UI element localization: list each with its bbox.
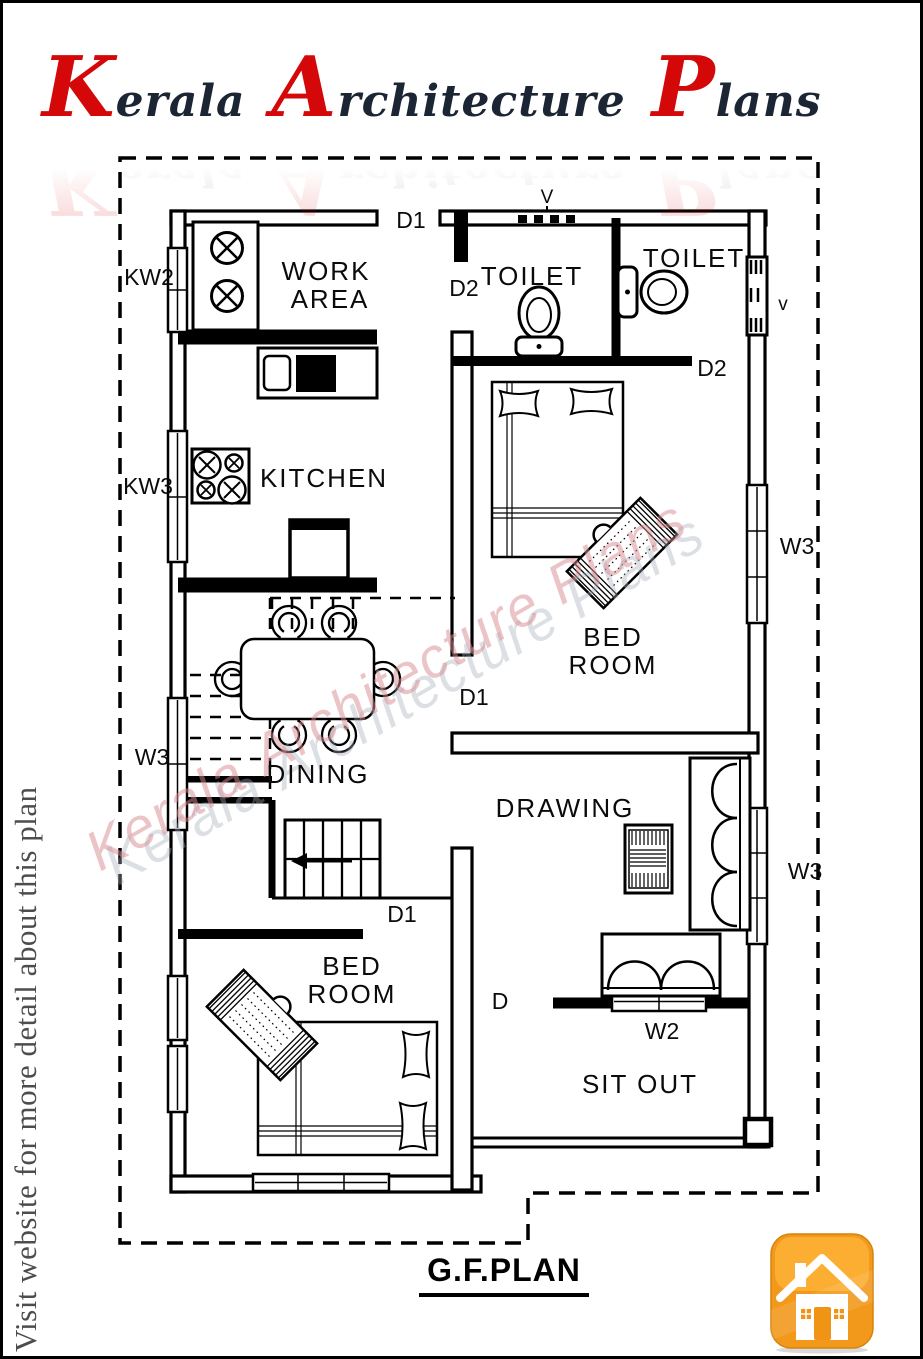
label-dining: DINING <box>267 759 370 789</box>
hob-icon <box>296 355 336 392</box>
stove-icon <box>192 449 249 504</box>
coffee-table-icon <box>625 825 672 893</box>
wall-sitout-edge <box>460 1138 769 1147</box>
pillow-icon <box>500 391 538 416</box>
pillow-icon <box>403 1032 429 1077</box>
label-drawing: DRAWING <box>496 793 635 823</box>
window-symbol-bedroom2-front <box>253 1174 389 1191</box>
plan-title: G.F.PLAN <box>419 1252 589 1297</box>
label-bedroom-2-b: ROOM <box>308 979 397 1009</box>
pillow-icon <box>400 1103 426 1149</box>
logo-word-2: Architecture <box>272 8 626 167</box>
wall-right <box>749 211 765 1147</box>
label-bedroom-1-b: ROOM <box>569 650 658 680</box>
label-window-w2: W2 <box>645 1018 680 1044</box>
site-logo: KeralaArchitecturePlans <box>42 8 848 167</box>
window-symbol-w3-upper <box>747 485 767 623</box>
label-bedroom-2-a: BED <box>322 951 381 981</box>
wc-icon <box>618 267 687 317</box>
label-door-d2-toilet1: D2 <box>449 275 478 301</box>
label-toilet-1: TOILET <box>481 261 584 291</box>
wall-bed1-drawing <box>452 733 758 753</box>
kitchen-counter <box>258 348 377 398</box>
label-vent-right: v <box>778 294 788 315</box>
sofa-three-seat-icon <box>690 758 750 930</box>
label-door-d1-bedroom2: D1 <box>387 901 416 927</box>
wall-spine-low <box>452 848 472 1190</box>
logo-word-1: Kerala <box>42 8 246 167</box>
floor-plan-page: KeralaArchitecturePlans KeralaArchitectu… <box>0 0 923 1359</box>
sofa-two-seat-icon <box>602 934 720 996</box>
chair-icon <box>272 606 306 638</box>
vent-symbol-right <box>747 257 767 335</box>
side-note: Visit website for more detail about this… <box>8 684 44 1352</box>
label-bedroom-1-a: BED <box>583 622 642 652</box>
stairs-icon <box>285 820 380 898</box>
label-window-w3-lower: W3 <box>788 858 823 884</box>
pillow-icon <box>571 389 612 414</box>
label-window-kw2: KW2 <box>124 264 174 290</box>
sitout-pillar <box>745 1119 771 1145</box>
label-door-d2-toilet2: D2 <box>697 355 726 381</box>
label-window-kw3: KW3 <box>123 473 173 499</box>
label-window-w3-upper: W3 <box>780 533 815 559</box>
label-window-w3-left: W3 <box>135 744 170 770</box>
label-sit-out: SIT OUT <box>582 1069 698 1099</box>
label-door-d1-bedroom1: D1 <box>459 684 488 710</box>
fridge-icon <box>290 520 348 578</box>
plan-title-wrap: G.F.PLAN <box>374 1252 634 1297</box>
label-door-d-sitout: D <box>492 988 509 1014</box>
wc-icon <box>516 287 562 356</box>
label-kitchen: KITCHEN <box>260 463 388 493</box>
label-work-area-2: AREA <box>291 284 370 314</box>
sink-icon <box>212 281 243 312</box>
chair-icon <box>322 606 356 638</box>
home-icon <box>768 1232 876 1354</box>
sink-square-icon <box>264 356 290 390</box>
logo-word-3: Plans <box>652 8 822 167</box>
